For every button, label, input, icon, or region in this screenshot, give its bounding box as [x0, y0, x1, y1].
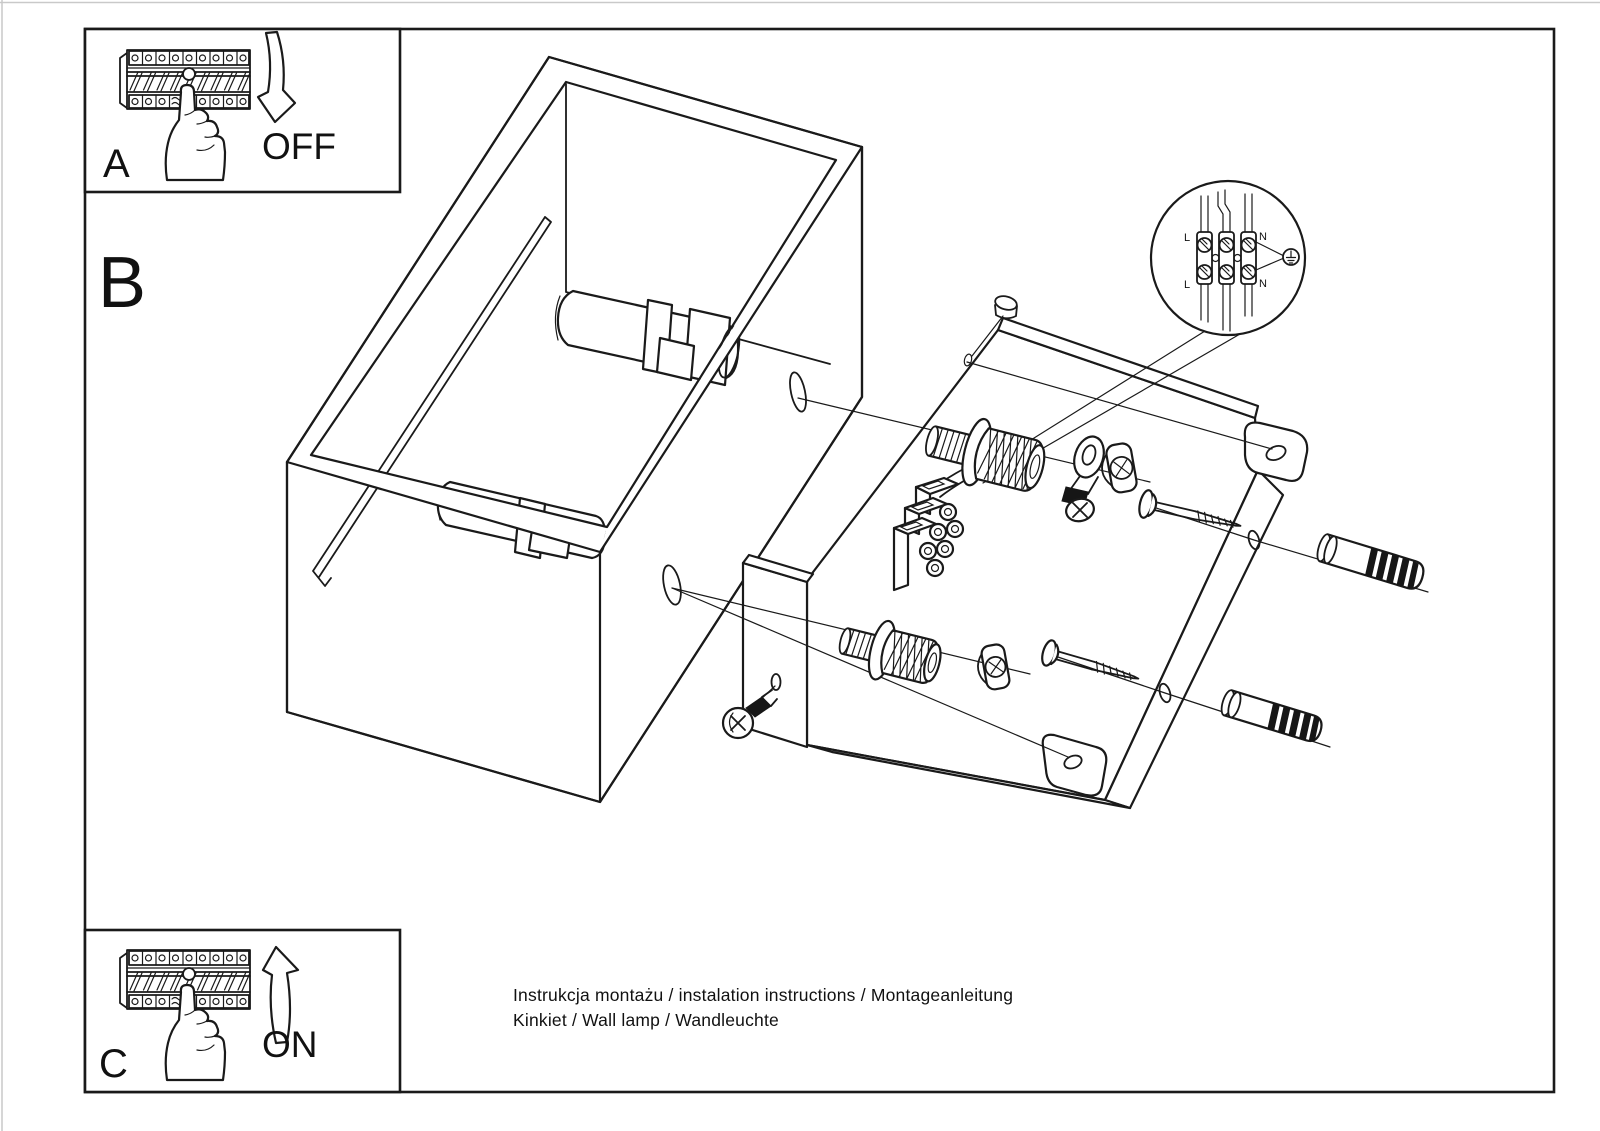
wall-anchor-upper — [1315, 533, 1426, 591]
off-label: OFF — [262, 126, 336, 167]
step-b-label: B — [98, 243, 146, 323]
diagram-canvas: A OFF B C ON — [0, 0, 1600, 1131]
step-c-label: C — [99, 1042, 128, 1086]
wire-label-l-top: L — [1184, 232, 1190, 244]
bracket-tab-top — [1245, 423, 1307, 481]
wire-label-n-bottom: N — [1259, 278, 1267, 290]
footer-line2: Kinkiet / Wall lamp / Wandleuchte — [513, 1010, 779, 1030]
footer-captions: Instrukcja montażu / instalation instruc… — [513, 985, 1013, 1030]
wire-label-n-top: N — [1259, 231, 1267, 243]
wire-label-l-bottom: L — [1184, 279, 1190, 291]
wall-anchor-lower — [1219, 689, 1324, 744]
footer-line1: Instrukcja montażu / instalation instruc… — [513, 985, 1013, 1005]
step-a-label: A — [103, 142, 130, 186]
wiring-detail-circle: L N L N — [1151, 181, 1305, 335]
instruction-sheet: A OFF B C ON — [0, 0, 1600, 1131]
bracket-end-flange — [743, 555, 813, 747]
ground-symbol-icon — [1283, 249, 1299, 265]
on-label: ON — [262, 1024, 318, 1065]
